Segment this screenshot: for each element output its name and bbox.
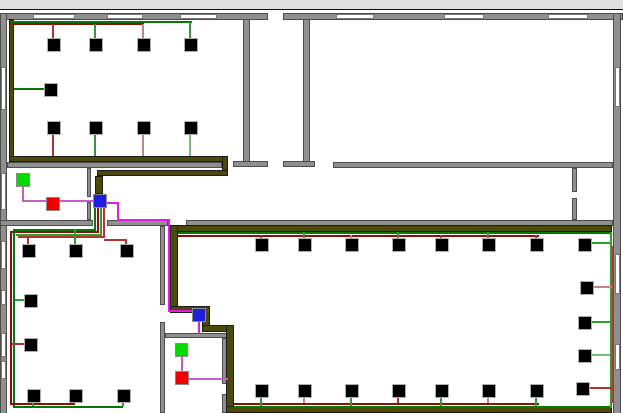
window-segment [444,14,484,19]
wire-green_mid [100,208,102,236]
wire-red_mid [103,208,105,238]
node-green[interactable] [175,343,188,357]
wall-segment [243,19,250,163]
network-device[interactable] [69,244,83,258]
wire-green_mid [350,397,352,406]
network-device[interactable] [137,121,151,135]
wire-red_dark [11,231,99,233]
wire-green_mid [535,397,537,406]
cable-conduit-segment [226,325,234,408]
window-segment [1,67,6,110]
network-device[interactable] [47,121,61,135]
wire-green_mid [189,22,191,38]
network-device[interactable] [184,38,198,52]
wall-segment [87,202,91,220]
wall-segment [160,226,165,305]
network-device[interactable] [44,83,58,97]
network-device[interactable] [578,238,592,252]
cable-conduit-segment [95,176,103,194]
cable-conduit-segment [170,225,178,310]
window-segment [1,290,6,305]
wire-green_mid [440,397,442,406]
window-segment [1,333,6,357]
network-device[interactable] [137,38,151,52]
network-device[interactable] [27,389,41,403]
window-segment [180,14,217,19]
wire-green_mid [591,321,610,323]
wire-green_mid [591,242,611,244]
wire-red_dark [10,403,75,405]
wall-segment [333,162,613,168]
network-device[interactable] [530,238,544,252]
network-device[interactable] [184,121,198,135]
floorplan-canvas [0,10,623,413]
wire-red_mid [52,134,54,156]
window-segment [1,173,6,210]
window-segment [1,241,6,269]
window-segment [1,361,6,379]
wire-red_mid [12,343,24,345]
window-segment [548,14,588,19]
wire-green_dark [14,88,44,90]
wire-green_mid [94,134,96,156]
node-blue[interactable] [93,194,107,208]
wire-green_dark [178,232,612,234]
wire-magenta_bright [168,219,170,312]
network-device[interactable] [435,384,449,398]
wire-green_light [189,134,191,156]
wire-red_mid [52,24,54,38]
window-segment [107,14,143,19]
window-segment [615,254,620,294]
node-green[interactable] [16,173,30,187]
wire-green_light [591,354,610,356]
network-device[interactable] [22,244,36,258]
wall-segment [233,161,268,167]
wire-red_dark [178,235,539,237]
network-device[interactable] [435,238,449,252]
network-device[interactable] [482,238,496,252]
window-segment [33,14,75,19]
network-device[interactable] [89,121,103,135]
cable-conduit-segment [9,156,228,162]
network-device[interactable] [298,238,312,252]
wire-magenta [189,378,228,380]
network-device[interactable] [255,384,269,398]
wall-segment [165,333,227,338]
wire-red_dark [10,231,12,405]
wire-red_light [593,286,612,288]
network-device[interactable] [24,338,38,352]
network-device[interactable] [69,389,83,403]
wire-red_dark [97,208,99,233]
wire-green_mid [94,24,96,38]
network-device[interactable] [255,238,269,252]
wire-magenta_bright [198,321,200,334]
network-device[interactable] [345,384,359,398]
wire-green_dark [13,406,123,408]
network-device[interactable] [578,349,592,363]
network-device[interactable] [47,38,61,52]
network-device[interactable] [117,389,131,403]
network-device[interactable] [482,384,496,398]
network-device[interactable] [392,238,406,252]
node-red[interactable] [175,371,189,385]
node-red[interactable] [46,197,60,211]
wall-segment [572,198,577,220]
wire-green_mid [15,299,24,301]
wall-segment [572,168,577,192]
window-segment [615,67,620,107]
wire-magenta [60,200,93,202]
wall-segment [283,161,315,167]
network-device[interactable] [576,382,590,396]
network-device[interactable] [298,384,312,398]
wire-red_mid [104,239,126,241]
wire-magenta_bright [168,310,194,312]
wire-magenta [181,357,183,372]
wire-red_light [142,134,144,156]
network-device[interactable] [530,384,544,398]
network-device[interactable] [578,316,592,330]
window-segment [615,344,620,370]
node-blue[interactable] [192,308,206,322]
network-device[interactable] [345,238,359,252]
wire-red_mid [18,236,105,238]
wire-red_mid [27,236,29,244]
wire-magenta_bright [117,219,169,221]
cable-conduit-segment [97,170,228,176]
wire-green_dark [13,229,15,407]
wire-green_mid [260,397,262,406]
cable-conduit-segment [170,225,612,232]
wire-red_light [142,24,144,38]
wire-red_dark [234,403,539,405]
wire-green_mid [74,229,76,244]
network-device[interactable] [24,294,38,308]
network-device[interactable] [89,38,103,52]
wire-red_dark [12,23,144,25]
wall-segment [87,168,91,197]
network-device[interactable] [120,244,134,258]
network-device[interactable] [580,281,594,295]
window-segment [336,14,374,19]
network-device[interactable] [392,384,406,398]
wall-segment [7,162,222,168]
wire-red_mid [589,387,612,389]
wire-green_dark [234,406,610,408]
wire-magenta [22,200,46,202]
wire-green_dark [94,208,96,231]
wire-red_mid [612,246,614,403]
wall-segment [303,19,310,163]
wall-segment [0,220,93,226]
